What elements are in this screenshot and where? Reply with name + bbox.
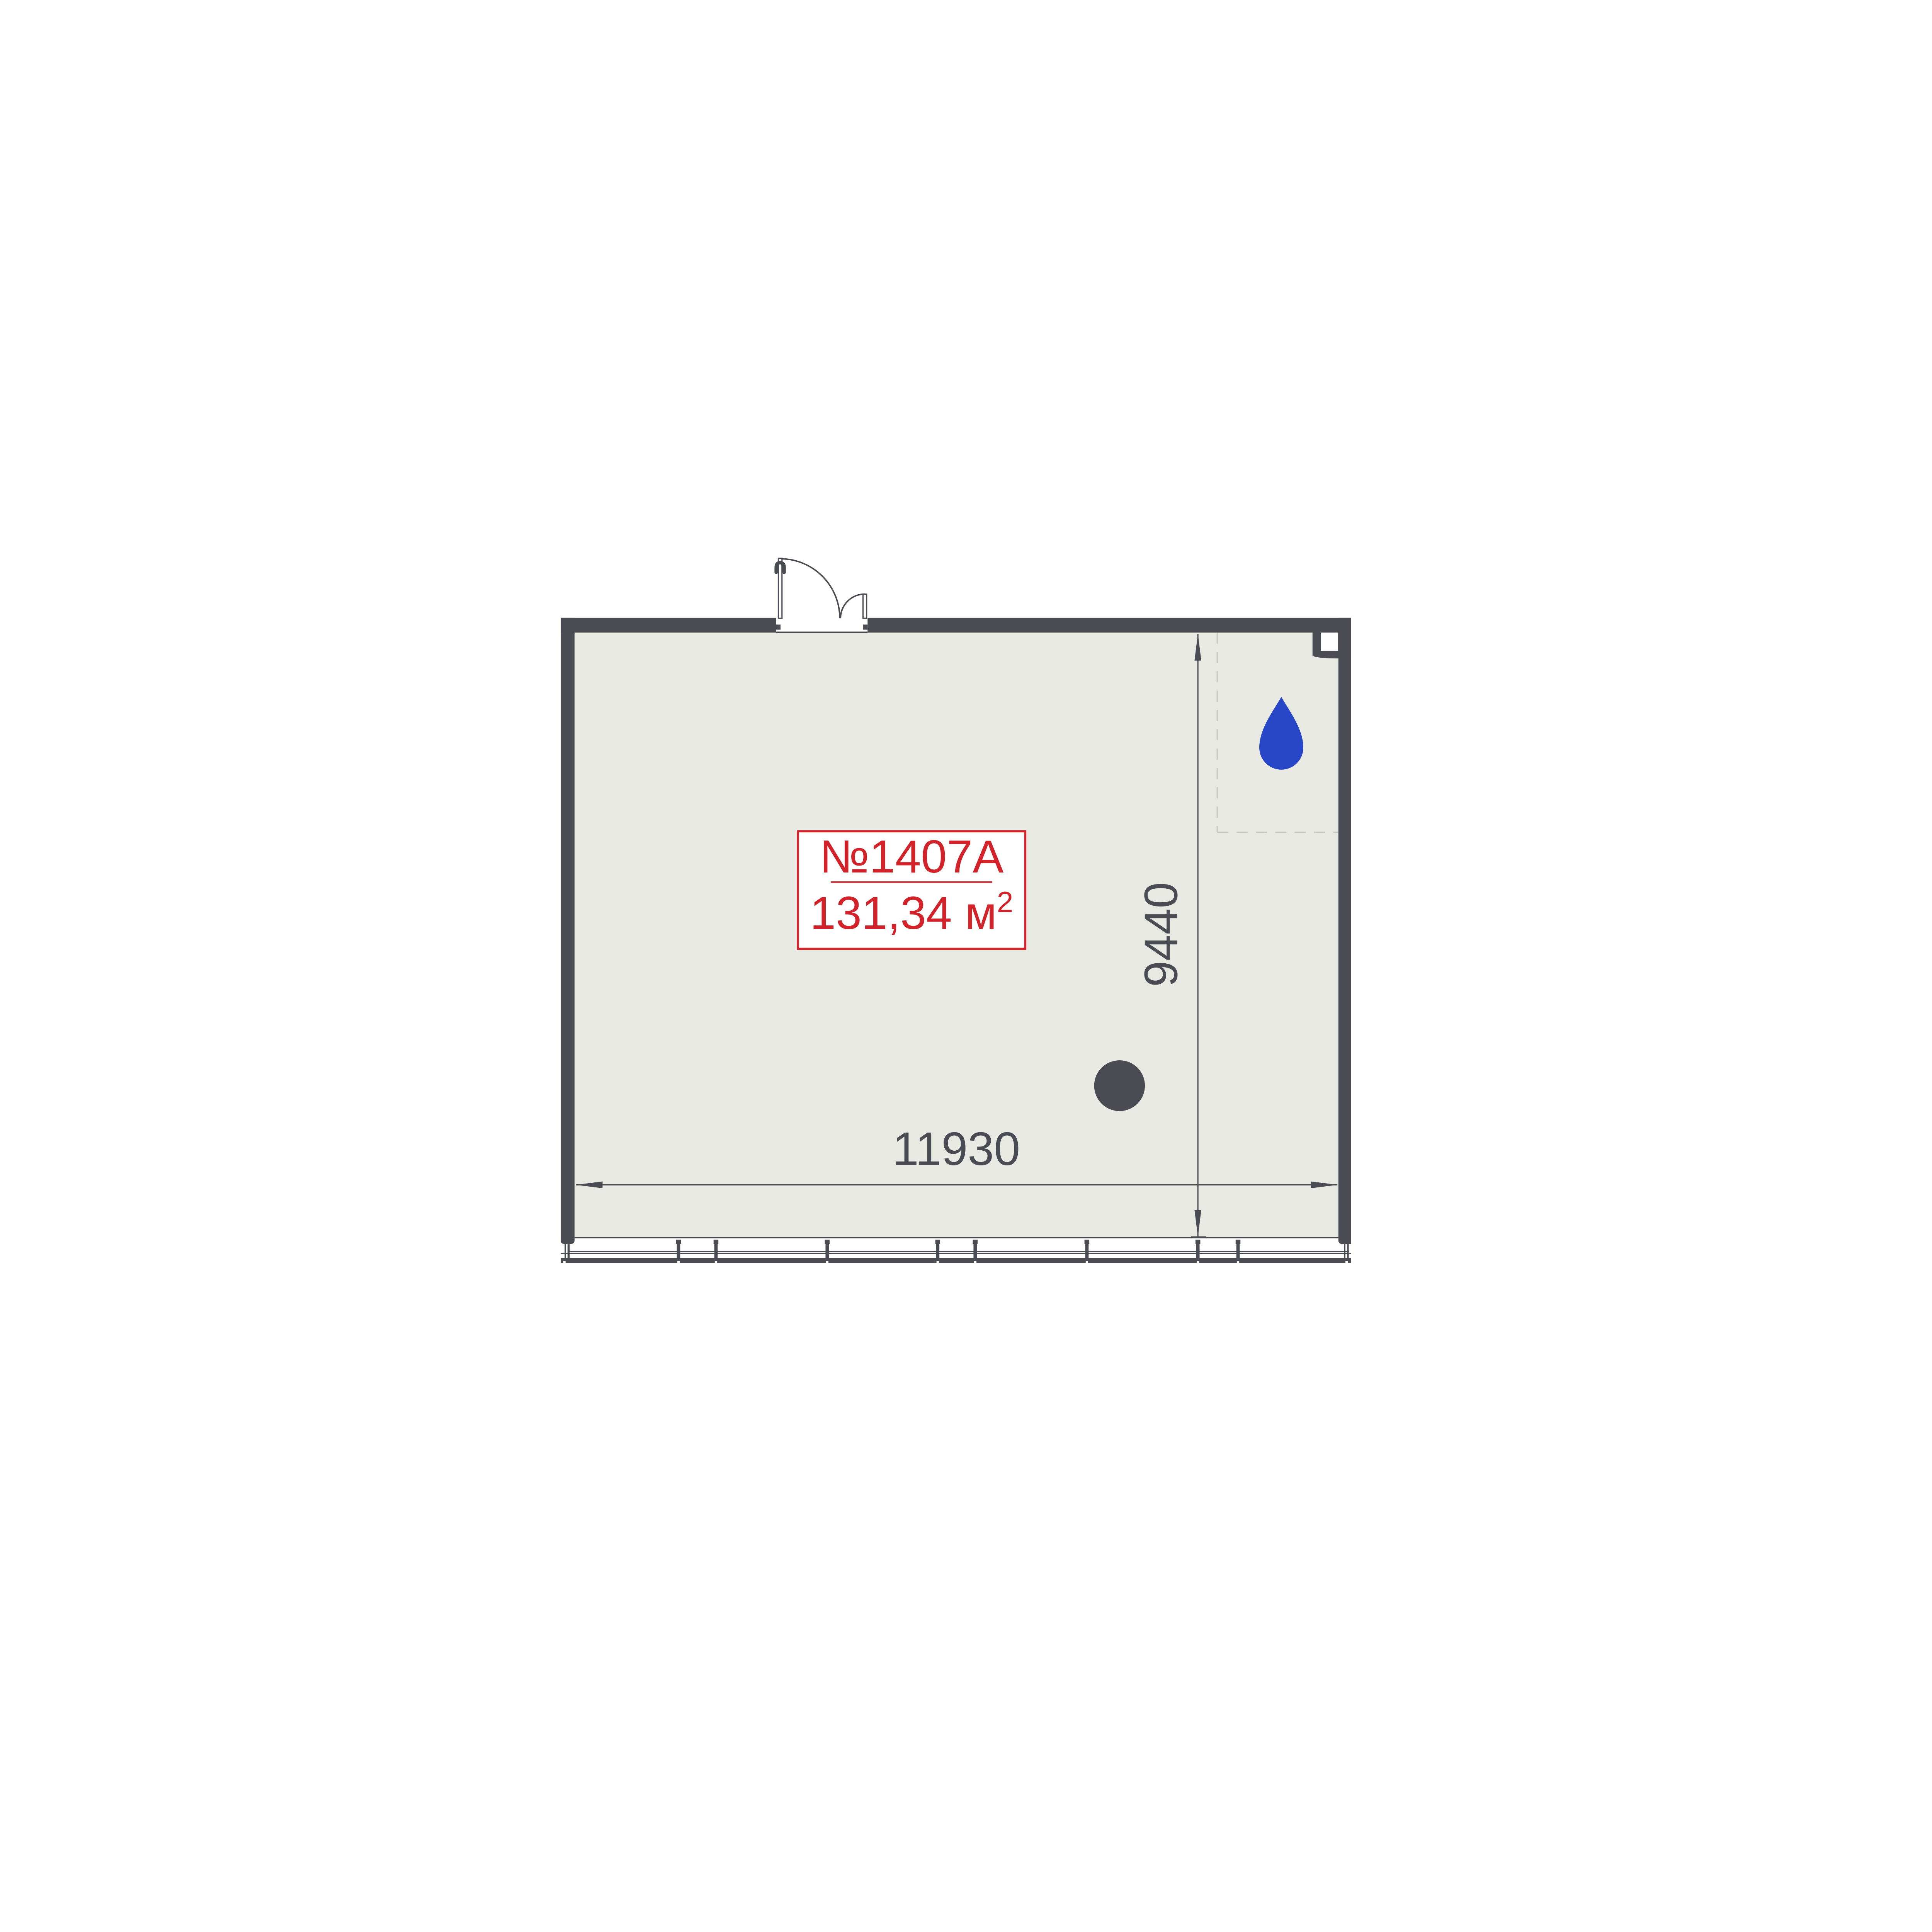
end-frame-left-a: [565, 1244, 566, 1258]
top-wall-right-segment: [867, 618, 1351, 633]
floor-plan-canvas: 9440 11930 №1407A 131,34 м2: [0, 0, 1932, 1932]
door-leaf-large: [778, 558, 782, 618]
window-wall: [561, 1237, 1351, 1263]
door-swing-arc-large: [782, 559, 840, 618]
entry-door: [776, 558, 868, 633]
dimension-height-value: 9440: [1134, 882, 1187, 987]
mullion: [973, 1240, 978, 1258]
mullion: [1085, 1240, 1090, 1258]
mullion: [1196, 1240, 1201, 1258]
mullion: [825, 1240, 830, 1258]
unit-area: 131,34 м2: [810, 886, 1013, 939]
floor-plan-page: 9440 11930 №1407A 131,34 м2: [0, 0, 1932, 1932]
door-jamb-left: [776, 624, 781, 629]
end-frame-right-b: [1347, 1244, 1349, 1258]
door-threshold: [776, 632, 868, 633]
door-swing-arc-small: [840, 594, 865, 619]
top-wall-left-segment: [561, 618, 776, 633]
left-wall: [561, 618, 575, 1244]
vent-shaft-opening: [1321, 633, 1338, 651]
mullion: [676, 1240, 681, 1258]
unit-number: №1407A: [820, 831, 1003, 883]
mullion: [714, 1240, 719, 1258]
column-circle-icon: [1094, 1060, 1145, 1111]
mullion: [1236, 1240, 1241, 1258]
door-leaf-small: [863, 594, 866, 619]
right-wall: [1338, 618, 1351, 1244]
end-frame-left-b: [568, 1244, 570, 1258]
unit-label: №1407A 131,34 м2: [798, 831, 1025, 949]
mullion: [935, 1240, 940, 1258]
unit-area-value: 131,34 м: [810, 887, 997, 939]
dimension-end-tick: [1191, 1236, 1206, 1238]
door-jamb-right: [863, 624, 867, 629]
end-frame-right-a: [1344, 1244, 1345, 1258]
dimension-width-value: 11930: [893, 1122, 1020, 1175]
glazing-inner-line: [575, 1237, 1338, 1238]
glazing-rail-upper: [570, 1251, 1349, 1252]
unit-area-exponent: 2: [997, 886, 1013, 918]
